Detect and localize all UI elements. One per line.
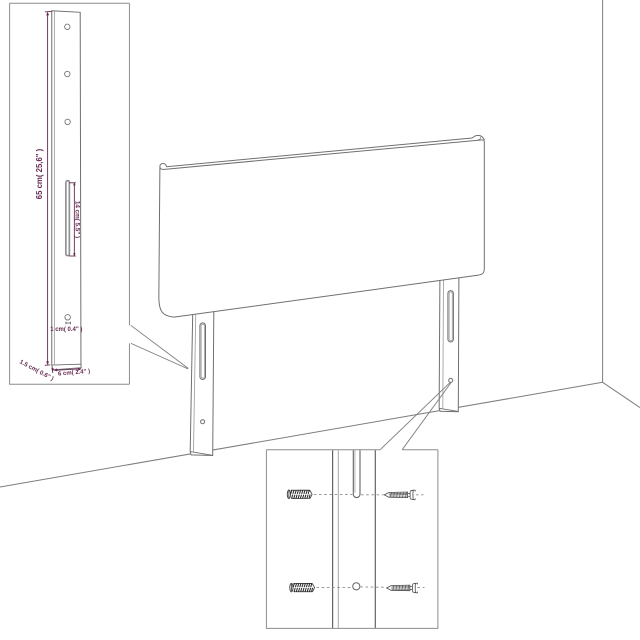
svg-text:14 cm( 5.5" ): 14 cm( 5.5" ) bbox=[73, 201, 80, 238]
svg-text:65 cm( 25,6" ): 65 cm( 25,6" ) bbox=[35, 148, 44, 199]
svg-text:1 cm( 0.4" ): 1 cm( 0.4" ) bbox=[50, 327, 82, 333]
